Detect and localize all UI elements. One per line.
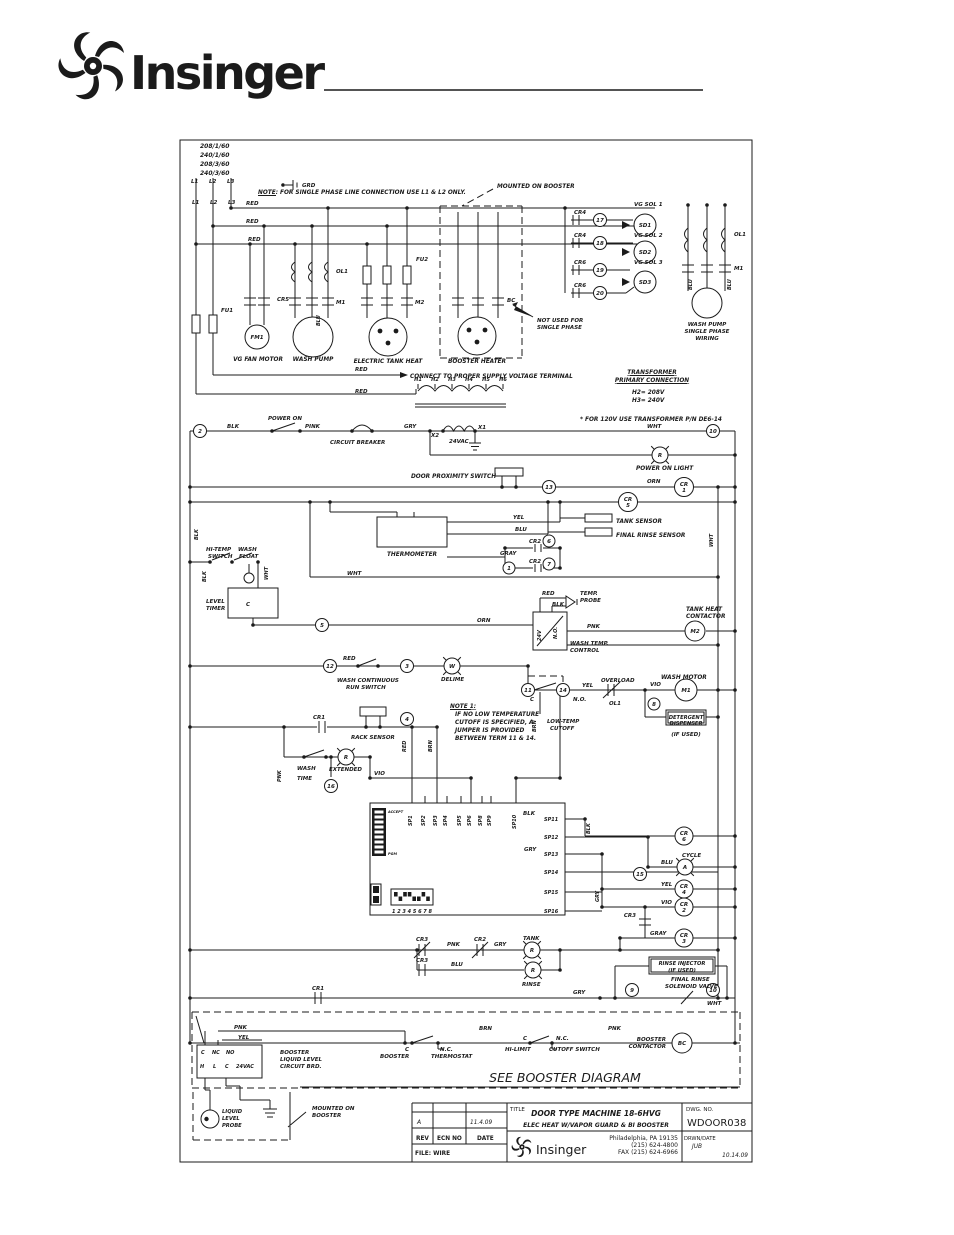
transformer-title: TRANSFORMER [627,370,676,376]
pcb-sp9: SP9 [487,815,493,826]
wire-gry-rot-1: GRY [595,890,601,902]
grd-label: GRD [302,183,316,189]
contact-cr4-b: CR4 [574,233,586,239]
junction-dot [188,948,192,952]
junction-dot [600,905,604,909]
delime: DELIME [441,677,464,683]
junction-dot [326,206,330,210]
booster-thermostat-2: THERMOSTAT [431,1054,474,1060]
wire-blk-r1: BLK [227,424,240,430]
hilimit-label: HI-LIMIT [505,1047,532,1053]
tank-sensor: TANK SENSOR [616,519,662,525]
insinger-logo-icon [53,29,126,105]
wire-red-2: RED [246,219,259,225]
junction-dot [646,865,650,869]
junction-dot [256,560,260,564]
hilimit-c: C [523,1036,527,1042]
contact-cr2-r: CR2 [474,937,486,943]
fan-motor-fm1-label: FM1 [250,335,263,341]
junction-dot [436,1041,440,1045]
term-18-label: 18 [596,241,604,247]
ctrl-24v: 24V [537,629,543,641]
power-on-lamp-label: R [658,453,662,459]
line-l1: L1 [192,200,200,206]
pcb-sp12: SP12 [544,835,559,841]
cycle-lamp-label: A [682,865,687,871]
contactor-bc-label: BC [678,1041,686,1047]
junction-dot [188,725,192,729]
junction-dot [298,429,302,433]
booster-heater: BOOSTER HEATER [448,359,506,365]
see-booster-diagram: SEE BOOSTER DIAGRAM [489,1070,641,1085]
power-on-switch: POWER ON [268,416,302,422]
wire-pnk-3: PNK [234,1025,248,1031]
junction-dot [733,453,737,457]
junction-dot [733,887,737,891]
junction-dot [435,725,439,729]
brand-wordmark: Insinger [130,46,325,100]
term-13-label: 13 [545,485,553,491]
tb-address-3: FAX (215) 624-6966 [618,1149,678,1156]
junction-dot [546,500,550,504]
junction-dot [370,429,374,433]
junction-dot [716,575,720,579]
pcb-sp4: SP4 [443,815,449,826]
term-6-label: 6 [547,539,551,545]
junction-dot [613,996,617,1000]
wire-red-rot: RED [402,741,408,752]
detergent-dispenser-2: DISPENSER [670,721,703,727]
term-7-label: 7 [547,562,551,568]
extended-lamp-ray [337,748,340,751]
booster-thermostat-1: BOOSTER [380,1054,409,1060]
junction-dot [188,1041,192,1045]
wire-blu-sp-1: BLU [688,279,694,290]
wash-time-1: WASH [297,766,316,772]
wire-wht-rot-1: WHT [709,533,715,547]
wire-wht-3: WHT [707,1001,723,1007]
wash-float-2: FLOAT [239,554,259,560]
contact-cr6-b: CR6 [574,283,586,289]
junction-dot [364,725,368,729]
junction-dot [208,560,212,564]
bterm-no: NO [226,1050,235,1056]
fuse-fu1-b [209,315,217,333]
bterm-c2: C [225,1064,229,1070]
wire-blk-pcb: BLK [523,811,536,817]
junction-dot [716,485,720,489]
term-x2: X2 [430,433,439,439]
junction-dot [723,203,727,207]
detergent-if-used: (IF USED) [671,732,701,738]
fuse-fu2-a [363,266,371,284]
junction-dot [262,224,266,228]
junction-dot [733,1041,737,1045]
wire-blu-3: BLU [451,962,463,968]
wire-yel-4: YEL [238,1035,250,1041]
rinse-lamp-ray [539,976,542,979]
term-h2: H2 [431,377,439,383]
tb-dwg-no: WDOOR038 [687,1118,746,1129]
not-used-note-2: SINGLE PHASE [537,325,582,331]
junction-dot [716,688,720,692]
wire-gry-2: GRY [494,942,507,948]
wire-red-4: RED [355,367,368,373]
thermostat-c: C [405,1047,409,1053]
final-rinse-sensor: FINAL RINSE SENSOR [616,533,685,539]
note1-line4: BETWEEN TERM 11 & 14. [455,736,536,742]
cutoff-switch: CUTOFF SWITCH [549,1047,600,1053]
line-l2: L2 [210,200,218,206]
pcb-sp11: SP11 [544,817,558,823]
wire-vio-3: VIO [661,900,672,906]
single-phase-pump-motor [692,288,722,318]
junction-dot [410,725,414,729]
junction-dot [385,224,389,228]
tap-h2-208: H2= 208V [632,390,665,396]
liquid-level-probe-2: LEVEL [222,1116,240,1122]
tank-lamp-ray [523,956,526,959]
term-h3: H3 [448,377,456,383]
junction-dot [558,948,562,952]
pcb-sp10: SP10 [512,814,518,829]
junction-dot [686,203,690,207]
junction-dot [558,968,562,972]
cycle-lamp-ray [691,873,694,876]
junction-dot [368,755,372,759]
junction-dot [324,755,328,759]
delime-lamp-ray [458,657,461,660]
delime-lamp-ray [443,657,446,660]
junction-dot [646,835,650,839]
rack-sensor: RACK SENSOR [351,735,395,741]
bterm-nc: NC [212,1050,220,1056]
mounted-on-booster-top: MOUNTED ON BOOSTER [497,184,575,190]
junction-dot [733,905,737,909]
rack-sensor-symbol [360,707,386,716]
contact-m2: M2 [415,300,424,306]
wire-yel-1: YEL [513,515,525,521]
junction-dot [733,936,737,940]
temp-probe-1: TEMP. [580,591,598,597]
tb-dwg-label: DWG. NO. [686,1107,714,1113]
pcb-sp1: SP1 [408,815,414,826]
fuse-fu1-a [192,315,200,333]
mounted-on-booster-2b: BOOSTER [312,1113,341,1119]
booster-heater-symbol [458,317,496,355]
liquid-level-probe-1: LIQUID [222,1109,243,1115]
thermometer-box [377,517,447,547]
term-14-label: 14 [559,688,567,694]
power-on-light: POWER ON LIGHT [636,466,694,472]
term-h6: H6 [499,377,507,383]
wire-gry-3: GRY [573,990,586,996]
tank-heater [369,318,407,356]
bterm-24vac: 24VAC [236,1064,254,1070]
junction-dot [733,688,737,692]
junction-dot [725,996,729,1000]
delime-lamp-ray [458,672,461,675]
tank-lamp-label: R [530,948,534,954]
term-15-label: 15 [636,872,644,878]
wire-red-12: RED [343,656,356,662]
tb-rev-a: A [416,1119,421,1126]
note1-line1: IF NO LOW TEMPERATURE [455,712,539,718]
wire-pink-r1: PINK [305,424,321,430]
junction-dot [558,566,562,570]
junction-dot [188,996,192,1000]
wire-gray-2: GRAY [650,931,667,937]
junction-dot [550,1041,554,1045]
term-h5: H5 [482,377,490,383]
drawing-border [180,140,752,1162]
junction-dot [473,429,477,433]
level-timer-1: LEVEL [206,599,225,605]
wire-wht-rot-2: WHT [264,566,270,580]
term-2-label: 2 [198,429,202,435]
wire-red-3: RED [248,237,261,243]
booster-contactor-2: CONTACTOR [629,1044,666,1050]
term-9-label: 9 [630,988,634,994]
junction-dot [328,500,332,504]
pcb-sp15: SP15 [544,890,559,896]
rinse-lamp-label: R [531,968,535,974]
pcb-pgm: PGM [388,852,397,856]
tb-drwn-label: DRWN/DATE [684,1136,716,1142]
junction-dot [329,755,333,759]
wire-pnk-rot: PNK [277,769,283,782]
junction-dot [188,485,192,489]
hi-temp-switch-2: SWITCH [208,554,233,560]
junction-dot [500,485,504,489]
junction-dot [716,715,720,719]
sec-24vac: 24VAC [449,439,469,445]
transformer-note: * FOR 120V USE TRANSFORMER P/N DE6-14 [580,417,722,423]
wire-orn-2: ORN [477,618,491,624]
term-3-label: 3 [405,664,409,670]
junction-dot [270,429,274,433]
cycle-lamp-ray [676,858,679,861]
junction-dot [188,664,192,668]
junction-dot [229,206,233,210]
contact-cr2-a: CR2 [529,539,541,545]
wire-pnk-1: PNK [587,624,601,630]
tb-col-rev: REV [416,1136,429,1142]
bterm-l: L [213,1064,216,1070]
wire-blk-rot-2: BLK [202,570,208,582]
final-rinse-valve-1: FINAL RINSE [671,977,710,983]
term-20-label: 20 [596,291,604,297]
line-l2-top: L2 [209,179,217,185]
contact-m1-wash: M1 [336,300,345,306]
junction-dot [733,629,737,633]
junction-dot [230,560,234,564]
timer-c: C [246,602,250,608]
term-10a-label: 10 [709,429,717,435]
line-l3: L3 [228,200,236,206]
tb-title-line1: DOOR TYPE MACHINE 18-6HVG [531,1109,661,1118]
diagram-labels: 208/1/60240/1/60208/3/60240/3/60L1L2L3GR… [191,143,746,1129]
contact-cr3-r2: CR3 [416,958,428,964]
booster-brd-1: BOOSTER [280,1050,309,1056]
junction-dot [281,183,285,187]
vg-sol-2: VG SOL 2 [634,233,663,239]
junction-dot [350,429,354,433]
junction-dot [365,242,369,246]
contact-bc: BC [507,298,515,304]
terminal-badges: 217181920101367151231114841615910CR1CR5C… [194,214,720,1054]
junction-dot [356,664,360,668]
line-l3-top: L3 [227,179,235,185]
lt-no: N.O. [573,697,586,703]
overload-ol1-sp: OL1 [734,232,746,238]
term-h1: H1 [414,377,422,383]
junction-dot [251,623,255,627]
rinse-lamp-label: RINSE [522,982,541,988]
junction-dot [282,725,286,729]
tank-heat-contactor-2: CONTACTOR [686,614,725,620]
wire-red-probe: RED [542,591,555,597]
junction-dot [514,776,518,780]
extended-lamp-ray [337,763,340,766]
contact-cr3-branch: CR3 [624,913,636,919]
contact-cr3-r1: CR3 [416,937,428,943]
wash-pump: WASH PUMP [293,357,334,363]
wire-yel-3: YEL [661,882,673,888]
mounted-on-booster-2a: MOUNTED ON [312,1106,355,1112]
tb-drwn-date: 10.14.09 [722,1153,748,1159]
liquid-level-probe-3: PROBE [222,1123,242,1129]
tb-file: FILE: WIRE [415,1151,450,1157]
junction-dot [188,560,192,564]
pcb-sp13: SP13 [544,852,559,858]
tank-lamp-label: TANK [523,936,540,942]
pcb-sp6: SP6 [467,815,473,826]
term-4-label: 4 [405,717,409,723]
note1-line3: JUMPER IS PROVIDED [454,728,525,734]
junction-dot [441,429,445,433]
wire-gry-pcb: GRY [524,847,537,853]
contact-cr1-r2: CR1 [312,986,324,992]
line-l1-top: L1 [191,179,199,185]
wash-float-1: WASH [238,547,257,553]
level-timer-2: TIMER [206,606,225,612]
wire-orn-1: ORN [647,479,661,485]
junction-dot [716,948,720,952]
term-1-label: 1 [507,566,511,572]
overload-label: OVERLOAD [601,678,635,684]
junction-dot [716,996,720,1000]
junction-dot [188,500,192,504]
junction-dot [410,1041,414,1045]
junction-dot [415,948,419,952]
low-temp-cutoff-1: LOW-TEMP [547,719,579,725]
term-12-label: 12 [326,664,334,670]
cycle-lamp-ray [676,873,679,876]
volt-rating-2: 240/1/60 [200,152,229,159]
low-temp-cutoff-2: CUTOFF [550,726,575,732]
junction-dot [368,776,372,780]
wire-blu-2: BLU [661,860,673,866]
tb-col-date: DATE [477,1136,494,1142]
rinse-lamp-ray [539,961,542,964]
pcb-sp3: SP3 [433,815,439,826]
tb-title-line2: ELEC HEAT W/VAPOR GUARD & BI BOOSTER [523,1122,669,1129]
cycle-lamp-label: CYCLE [682,853,701,859]
term-11-label: 11 [524,688,532,694]
tb-address-2: (215) 624-4800 [631,1142,678,1149]
junction-dot [293,242,297,246]
tb-title-label: TITLE [509,1107,525,1113]
ctrl-no: N.O. [553,627,559,639]
overload-ol1-3: OL1 [609,701,621,707]
thermostat-nc: N.C. [440,1047,453,1053]
junction-dot [302,755,306,759]
junction-dot [376,664,380,668]
wiring-diagram: Insinger [0,0,954,1235]
volt-rating-4: 240/3/60 [200,170,229,177]
power-on-lamp-ray [651,446,654,449]
title-block: A 11.4.09 REV ECN NO DATE FILE: WIRE TIT… [412,1103,752,1162]
rinse-lamp-ray [524,976,527,979]
junction-dot [643,688,647,692]
tank-heat-contactor-1: TANK HEAT [686,607,723,613]
rinse-lamp-ray [524,961,527,964]
pcb-sp8: SP8 [478,815,484,826]
transformer-sub: PRIMARY CONNECTION [615,378,689,384]
wire-brn-2: BRN [479,1026,492,1032]
motor-m1-wash-label: M1 [681,688,690,694]
temp-probe-2: PROBE [580,598,601,604]
extended-lamp-ray [352,763,355,766]
term-x1: X1 [477,425,486,431]
junction-dot [378,725,382,729]
final-rinse-valve-2: SOLENOID VALVE [665,984,718,990]
lt-c: C [530,697,534,703]
wire-pnk-4: PNK [608,1026,622,1032]
fuse-fu2-c [403,266,411,284]
pcb-sp2: SP2 [421,815,427,826]
wash-time-2: TIME [297,776,312,782]
dip-switch-numbers: 1 2 3 4 5 6 7 8 [392,909,433,915]
pcb-sp5: SP5 [457,815,463,826]
junction-dot [733,485,737,489]
delime-lamp-ray [443,672,446,675]
junction-dot [563,206,567,210]
pcb-sp16: SP16 [544,909,559,915]
contact-m1-sp: M1 [734,266,743,272]
booster-brd-3: CIRCUIT BRD. [280,1064,322,1070]
wire-wht-r1: WHT [647,424,663,430]
solenoid-sd2-label: SD2 [639,250,652,256]
junction-dot [308,500,312,504]
float-symbol [244,573,254,583]
door-proximity-switch: DOOR PROXIMITY SWITCH [411,474,496,480]
sp-wiring-3: WIRING [695,336,719,342]
booster-brd-2: LIQUID LEVEL [280,1057,322,1063]
wash-continuous-2: RUN SWITCH [346,685,386,691]
extended-lamp-ray [352,748,355,751]
tank-sensor-symbol [585,514,612,522]
cutoff-nc: N.C. [556,1036,569,1042]
overload-ol1-wash: OL1 [336,269,348,275]
power-on-lamp-ray [666,446,669,449]
junction-dot [618,936,622,940]
delime-lamp-label: W [449,664,456,670]
wash-motor: WASH MOTOR [661,675,707,681]
wire-blu-1: BLU [515,527,527,533]
wire-brn-rot-2: BRN [428,739,434,752]
